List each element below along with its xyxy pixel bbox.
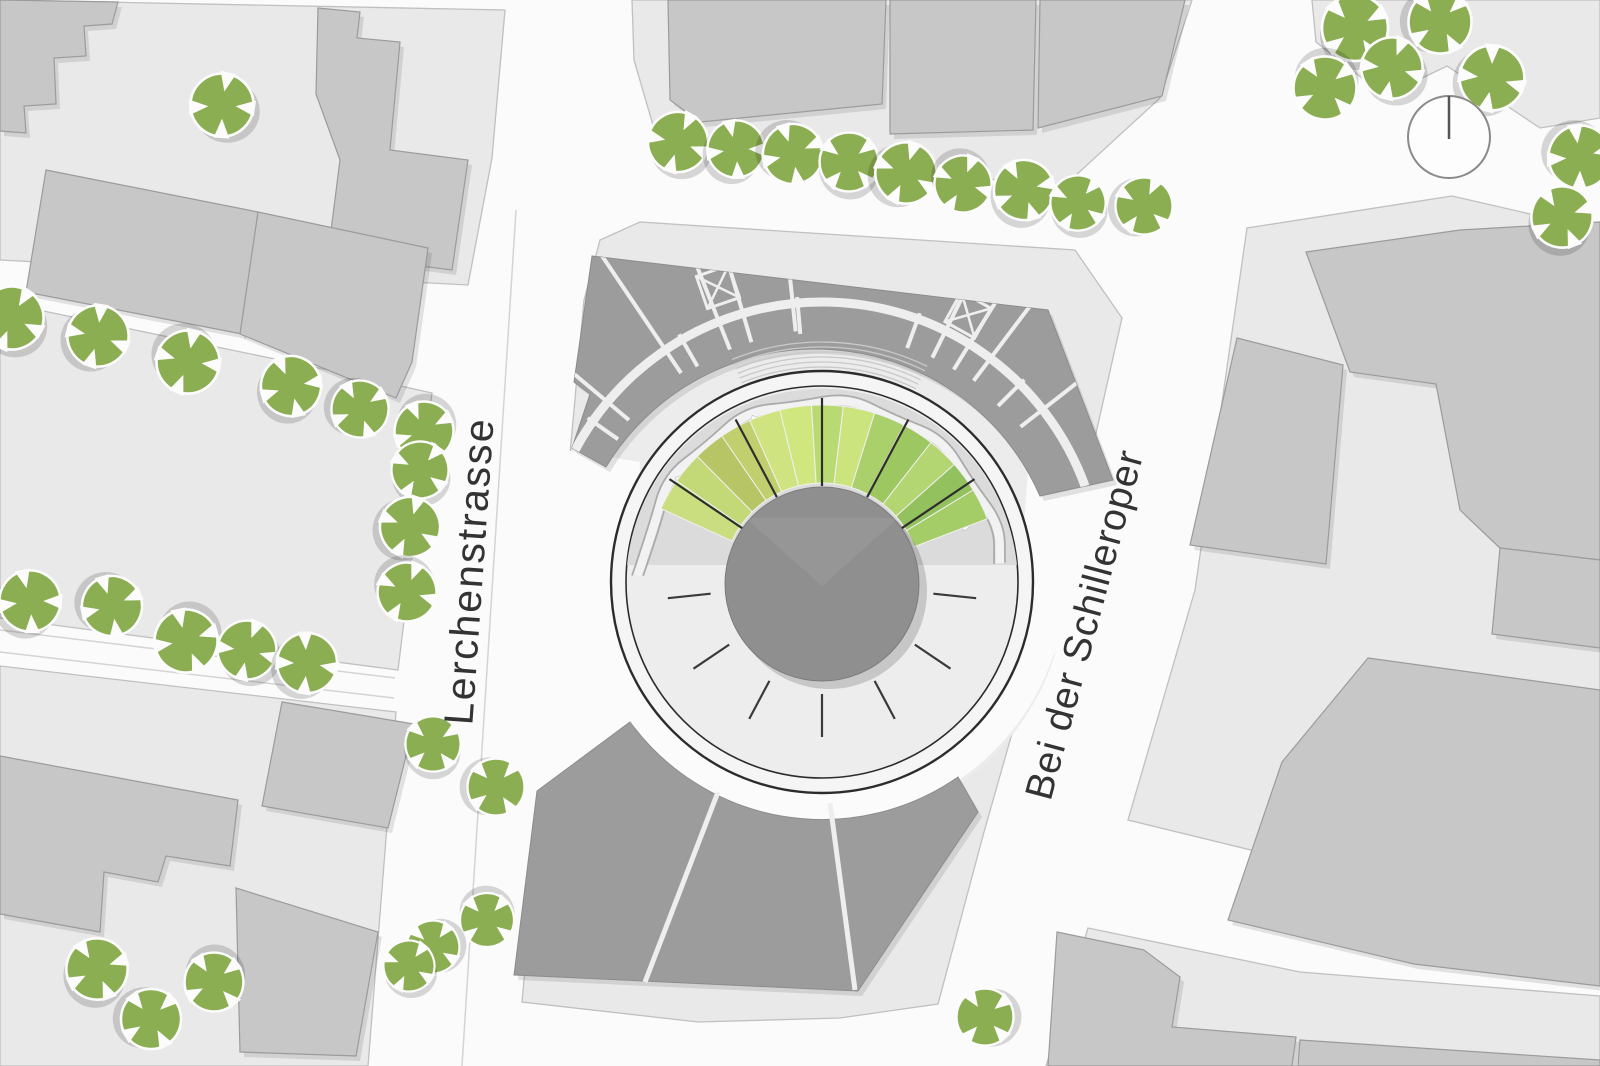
building-sw-upper-right bbox=[262, 702, 414, 828]
site-plan-svg: LerchenstrasseBei der Schilleroper bbox=[0, 0, 1600, 1066]
building-east-large-annex bbox=[1492, 548, 1600, 648]
building-north-slab-b bbox=[890, 0, 1036, 134]
north-indicator bbox=[1408, 96, 1490, 178]
site-plan: LerchenstrasseBei der Schilleroper bbox=[0, 0, 1600, 1066]
building-north-slab-a bbox=[668, 0, 886, 122]
